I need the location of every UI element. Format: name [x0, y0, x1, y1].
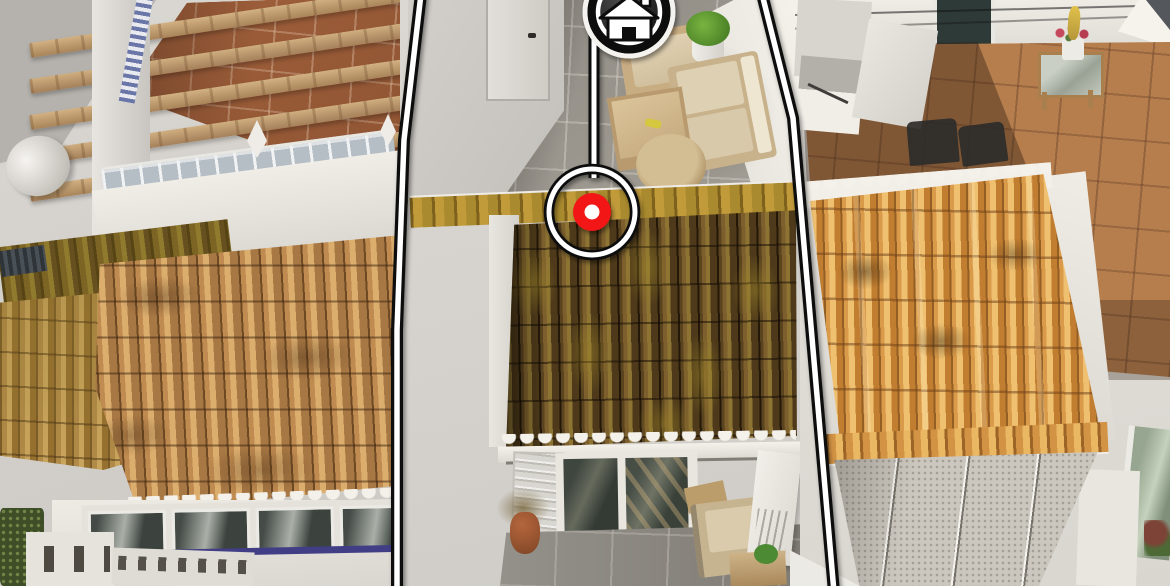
sliding-glass-doors	[555, 451, 699, 541]
aerial-photo-canvas	[0, 0, 1170, 586]
house-door	[622, 27, 636, 40]
marker-dot-center	[585, 205, 600, 220]
side-table-plant	[754, 544, 778, 564]
small-plant-corner	[1144, 520, 1170, 556]
glass-pane	[563, 458, 618, 531]
white-structure	[1076, 469, 1140, 586]
table-leg	[1088, 90, 1093, 108]
balustrade-slots	[30, 546, 110, 572]
window	[172, 508, 251, 554]
black-chair	[906, 118, 960, 166]
sofa-cushion	[676, 60, 745, 115]
potted-plant-leaves	[686, 11, 730, 46]
lower-rail	[111, 548, 254, 586]
window	[256, 506, 335, 552]
moss-covered-main-roof	[496, 205, 800, 450]
door-handle	[528, 33, 536, 38]
rail-slots	[118, 556, 248, 575]
white-balustrade	[26, 532, 114, 586]
terracotta-pot	[510, 512, 540, 554]
table-leg	[1042, 92, 1047, 110]
glass-pane	[625, 457, 688, 530]
terrace-door	[486, 0, 550, 101]
black-chair	[957, 121, 1008, 167]
